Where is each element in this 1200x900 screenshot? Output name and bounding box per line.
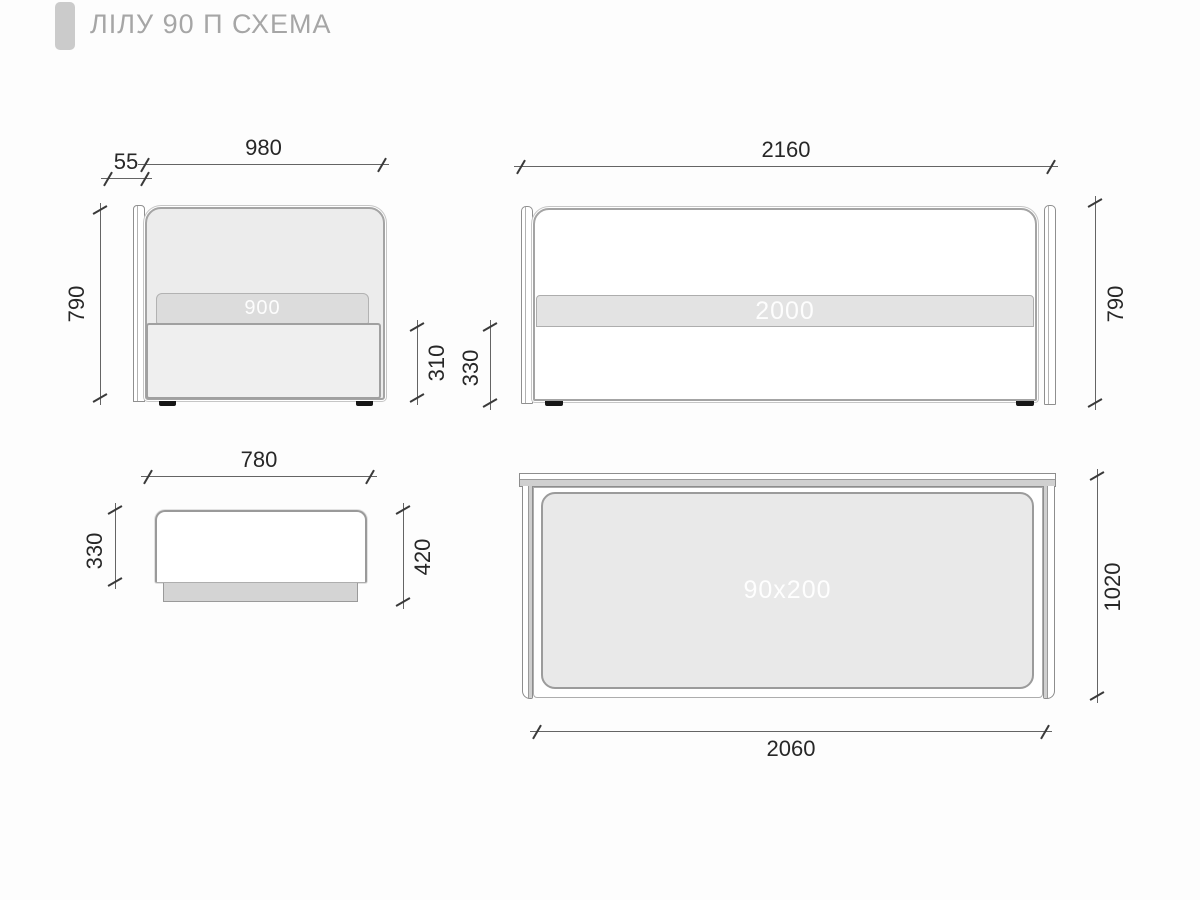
front-mattress: 900 bbox=[156, 293, 369, 324]
front-mattress-label: 900 bbox=[244, 297, 280, 320]
dim-line-420 bbox=[403, 503, 404, 609]
plan-backrest-strip bbox=[519, 473, 1056, 487]
plan-end-panel-left bbox=[522, 486, 533, 699]
front-foot-right bbox=[356, 401, 373, 406]
dim-value-790-side: 790 bbox=[1104, 274, 1128, 334]
dim-value-780: 780 bbox=[148, 448, 370, 472]
dim-line-780 bbox=[141, 476, 377, 477]
front-foot-left bbox=[159, 401, 176, 406]
end-panel-band bbox=[1044, 486, 1048, 698]
bench-base-plinth bbox=[163, 583, 358, 602]
front-backrest-edge bbox=[133, 205, 145, 402]
dim-line-2060 bbox=[530, 731, 1052, 732]
page-title: ЛІЛУ 90 П СХЕМА bbox=[90, 9, 332, 40]
dim-line-330-bench bbox=[115, 503, 116, 589]
panel-seam-line bbox=[137, 206, 138, 401]
dim-line-310 bbox=[417, 320, 418, 405]
dim-value-330-side: 330 bbox=[459, 338, 483, 398]
dim-value-310: 310 bbox=[425, 333, 449, 393]
plan-end-panel-right bbox=[1043, 486, 1055, 699]
title-accent-bar bbox=[55, 2, 75, 50]
dim-line-980 bbox=[138, 164, 389, 165]
plan-mattress: 90x200 bbox=[541, 492, 1034, 689]
panel-seam-line bbox=[1048, 206, 1049, 404]
plan-mattress-label: 90x200 bbox=[743, 576, 831, 605]
dim-line-2160 bbox=[514, 166, 1058, 167]
dim-value-2060: 2060 bbox=[537, 737, 1045, 761]
side-foot-right bbox=[1016, 401, 1034, 406]
dim-value-420: 420 bbox=[411, 527, 435, 587]
dim-line-1020 bbox=[1097, 469, 1098, 703]
dim-line-790-side bbox=[1095, 196, 1096, 410]
dim-value-330-bench: 330 bbox=[83, 521, 107, 581]
dim-value-2160: 2160 bbox=[521, 138, 1051, 162]
side-foot-left bbox=[545, 401, 563, 406]
dim-line-790-front bbox=[100, 203, 101, 405]
dim-value-1020: 1020 bbox=[1101, 557, 1125, 617]
side-end-panel-left bbox=[521, 206, 533, 404]
side-mattress: 2000 bbox=[536, 295, 1034, 327]
dim-value-55: 55 bbox=[100, 150, 152, 174]
dim-value-790-front: 790 bbox=[65, 274, 89, 334]
front-base bbox=[146, 323, 381, 399]
bench-body-panel bbox=[155, 510, 367, 583]
side-mattress-label: 2000 bbox=[755, 297, 815, 326]
side-end-panel-right bbox=[1044, 205, 1056, 405]
dim-line-330-side bbox=[490, 320, 491, 410]
backrest-band bbox=[520, 479, 1055, 486]
dim-value-980: 980 bbox=[145, 136, 382, 160]
schema-page: ЛІЛУ 90 П СХЕМА 900 980 55 790 310 bbox=[0, 0, 1200, 900]
panel-seam-line bbox=[525, 207, 526, 403]
end-panel-band bbox=[528, 486, 532, 698]
